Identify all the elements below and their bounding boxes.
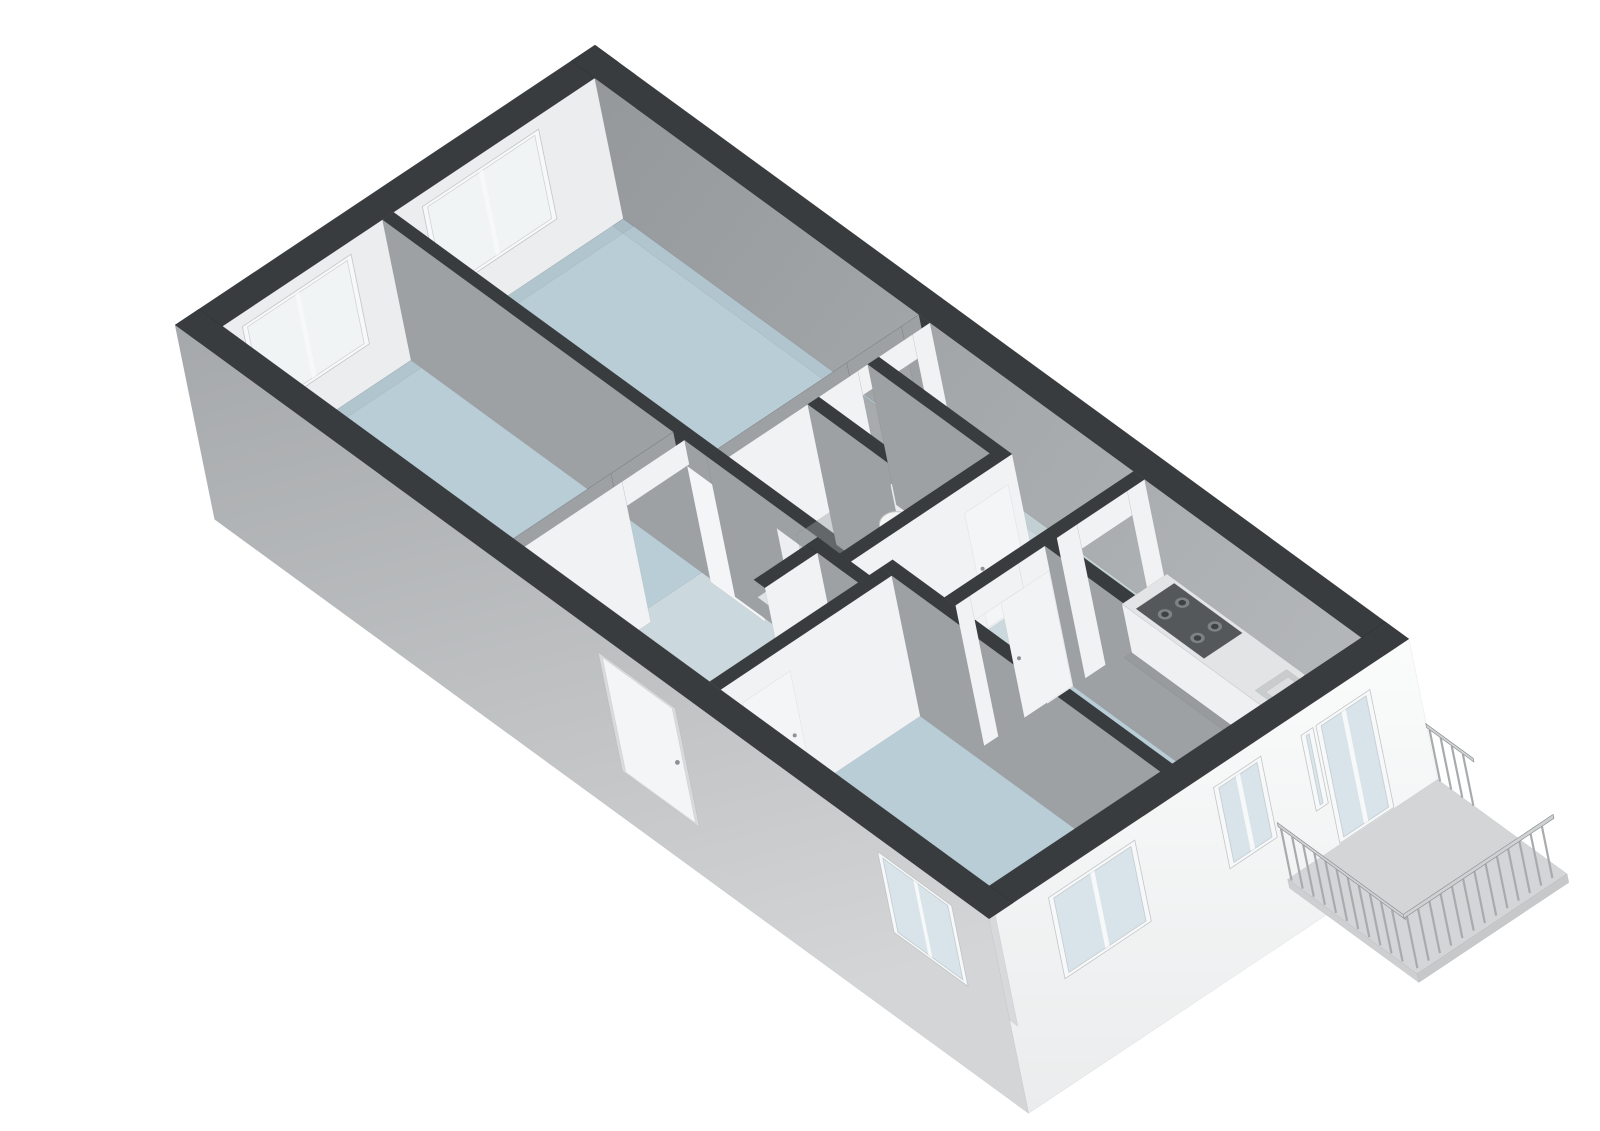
toilet-door-handle xyxy=(981,567,985,571)
entrance-door-handle xyxy=(675,760,680,765)
floor-plan-svg xyxy=(0,0,1600,1131)
stove-burner-center xyxy=(1178,600,1186,606)
floor-plan-page xyxy=(0,0,1600,1131)
stove-burner-center xyxy=(1211,624,1219,630)
bedroom3-door-handle xyxy=(1017,656,1021,660)
stove-burner-center xyxy=(1161,612,1169,618)
bedroom2-door-handle xyxy=(793,733,797,737)
stove-burner-center xyxy=(1194,635,1202,641)
